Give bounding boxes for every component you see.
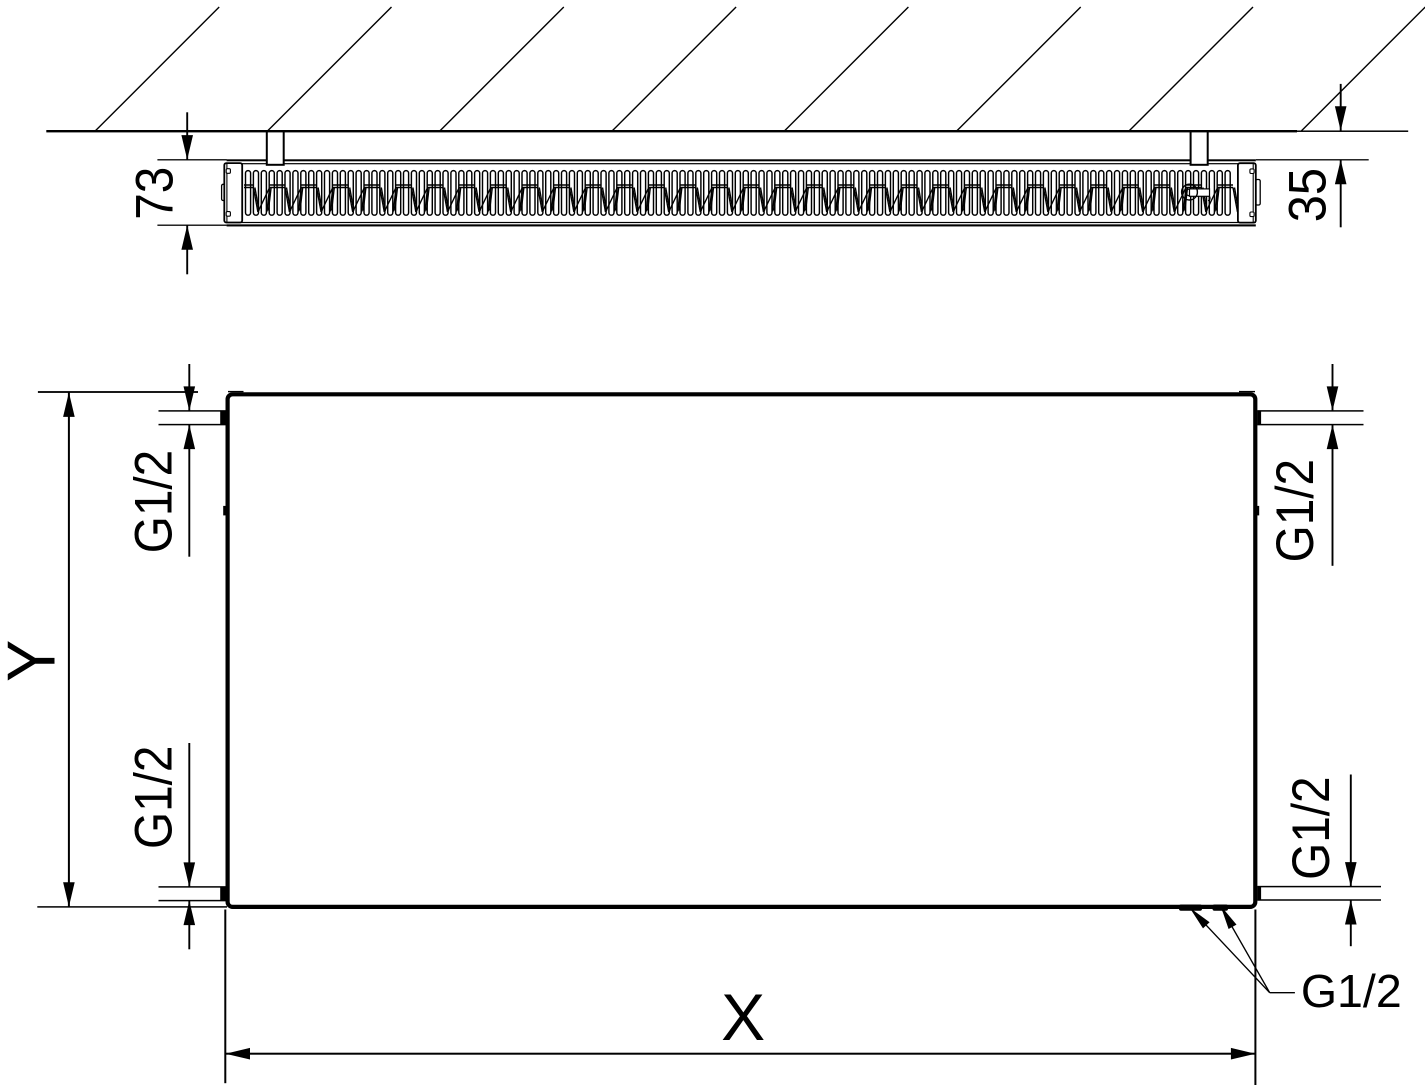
svg-text:G1/2: G1/2 [123,450,183,553]
svg-text:G1/2: G1/2 [1265,459,1325,562]
svg-text:73: 73 [124,167,184,220]
svg-text:G1/2: G1/2 [1301,965,1402,1017]
svg-text:G1/2: G1/2 [123,746,183,849]
svg-text:Y: Y [0,640,69,682]
svg-text:X: X [721,980,765,1054]
svg-text:G1/2: G1/2 [1281,777,1341,880]
svg-text:35: 35 [1278,168,1337,222]
